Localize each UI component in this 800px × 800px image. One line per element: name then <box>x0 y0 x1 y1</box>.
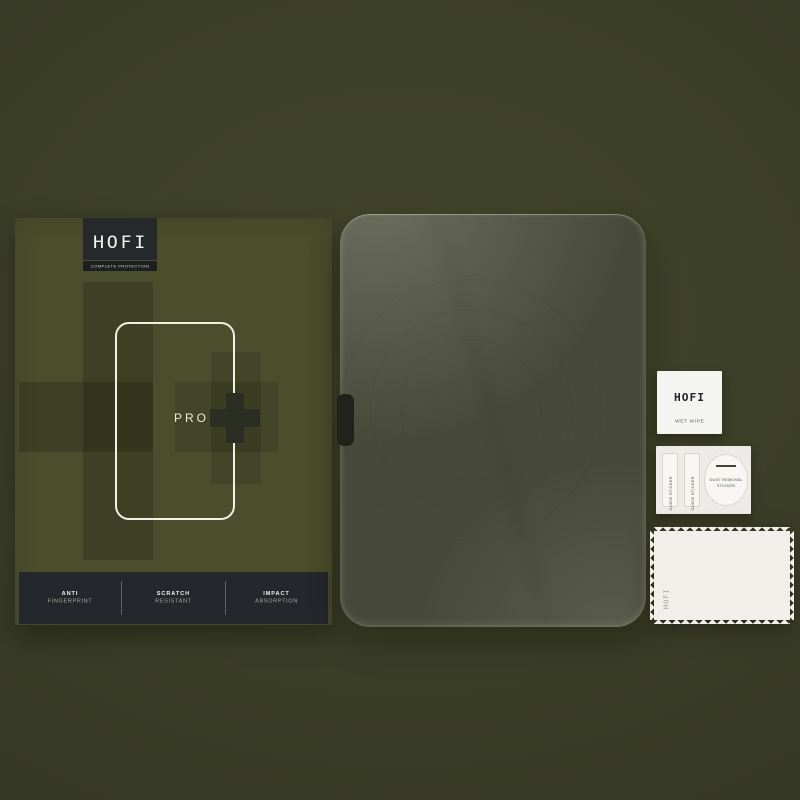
guide-sticker-left: GUIDE STICKER <box>662 453 678 507</box>
feature-anti-fingerprint: ANTI FINGERPRINT <box>19 586 121 611</box>
sticker-mark <box>716 465 736 467</box>
feature-line2: FINGERPRINT <box>48 597 93 603</box>
wet-wipe-sachet: HOFI WET WIPE <box>657 371 722 434</box>
feature-impact-absorption: IMPACT ABSORPTION <box>226 586 328 611</box>
hofi-logo: HOFI <box>656 391 722 404</box>
features-strip: ANTI FINGERPRINT SCRATCH RESISTANT IMPAC… <box>19 572 328 624</box>
hofi-logo: HOFI <box>663 589 671 610</box>
brand-logo-block: HOFI <box>83 218 157 260</box>
feature-line1: ANTI <box>48 590 93 596</box>
product-photo-scene: HOFI COMPLETE PROTECTION PRO ANTI FINGER… <box>0 0 800 800</box>
tagline-text: COMPLETE PROTECTION <box>91 264 150 269</box>
guide-sticker-right: GUIDE STICKER <box>684 453 700 507</box>
sticker-sheet: GUIDE STICKER GUIDE STICKER DUST REMOVAL… <box>656 446 751 514</box>
camera-cutout-tab <box>337 394 354 446</box>
plus-icon <box>210 393 260 443</box>
dust-removal-label: DUST REMOVAL STICKER <box>710 477 743 489</box>
packaging-box: HOFI COMPLETE PROTECTION PRO ANTI FINGER… <box>15 218 332 625</box>
dust-removal-line2: STICKER <box>717 484 735 489</box>
feature-scratch-resistant: SCRATCH RESISTANT <box>122 586 224 611</box>
dust-removal-sticker: DUST REMOVAL STICKER <box>704 454 748 506</box>
feature-line1: SCRATCH <box>155 590 191 596</box>
plus-icon-horizontal-bar <box>210 409 260 427</box>
hofi-logo: HOFI <box>92 233 147 253</box>
dust-removal-line1: DUST REMOVAL <box>710 478 743 483</box>
screen-protector-glass <box>340 214 646 627</box>
guide-sticker-label: GUIDE STICKER <box>668 476 673 510</box>
frost-ring <box>340 279 602 541</box>
cloth-body: HOFI <box>654 531 790 620</box>
wet-wipe-label: WET WIPE <box>657 411 722 429</box>
feature-line2: RESISTANT <box>155 597 191 603</box>
microfiber-cloth: HOFI <box>650 527 794 624</box>
feature-line2: ABSORPTION <box>255 597 298 603</box>
model-label: PRO <box>165 411 209 425</box>
feature-line1: IMPACT <box>255 590 298 596</box>
guide-sticker-label: GUIDE STICKER <box>690 476 695 510</box>
tagline-strip: COMPLETE PROTECTION <box>83 261 157 271</box>
